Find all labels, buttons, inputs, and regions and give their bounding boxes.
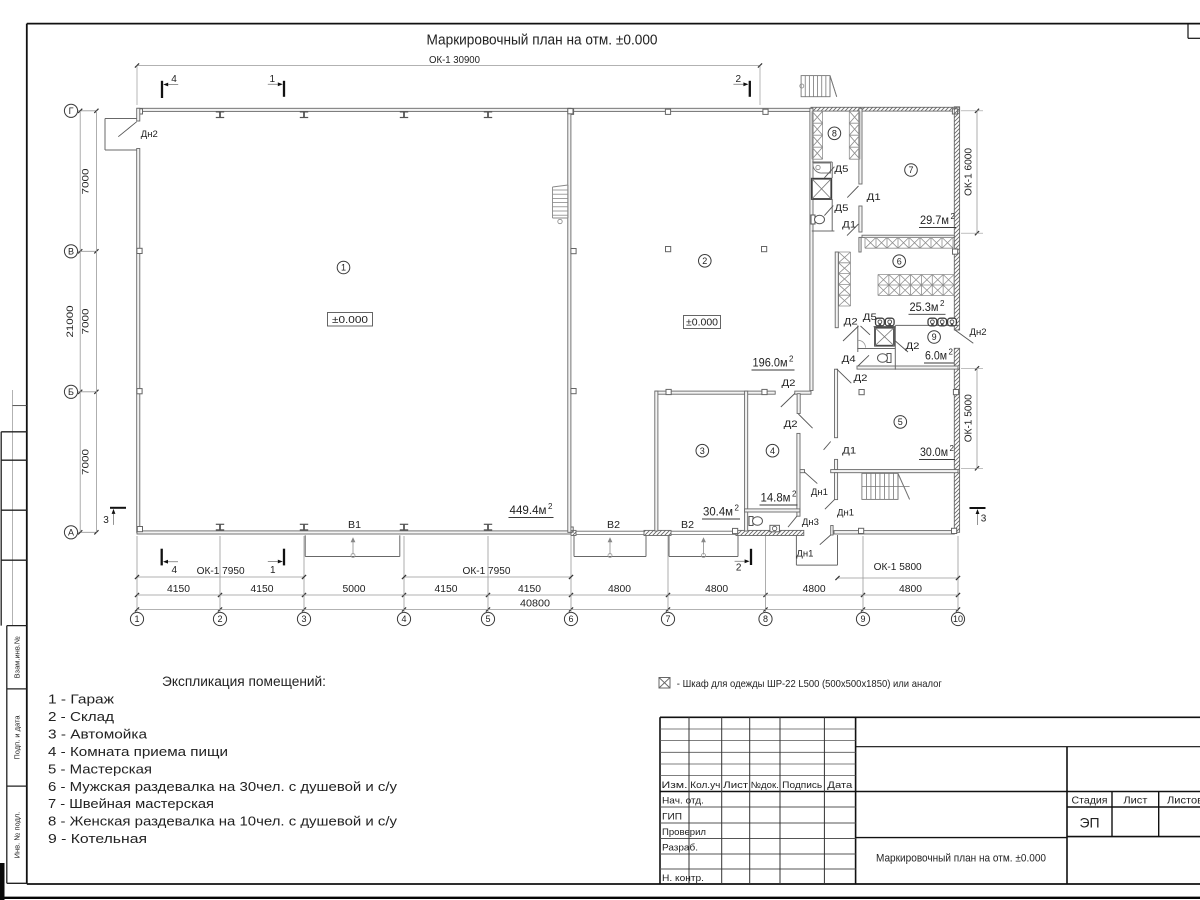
svg-text:2: 2 — [789, 355, 794, 364]
svg-text:В2: В2 — [607, 520, 620, 531]
svg-text:ЭП: ЭП — [1079, 815, 1099, 831]
svg-text:4: 4 — [172, 565, 178, 576]
svg-text:2: 2 — [951, 212, 956, 221]
svg-text:7: 7 — [908, 165, 913, 175]
svg-text:3: 3 — [981, 514, 987, 525]
svg-text:1: 1 — [270, 74, 276, 85]
svg-text:4150: 4150 — [251, 584, 275, 595]
svg-text:2: 2 — [792, 490, 797, 499]
svg-text:3: 3 — [301, 614, 306, 624]
svg-text:Г: Г — [69, 106, 74, 116]
svg-text:Экспликация помещений:: Экспликация помещений: — [162, 674, 326, 689]
svg-text:2 - Склад: 2 - Склад — [48, 709, 114, 724]
svg-text:Д5: Д5 — [834, 203, 848, 214]
svg-text:Инв. № подл.: Инв. № подл. — [13, 812, 22, 859]
svg-text:Кол.уч: Кол.уч — [690, 780, 720, 790]
svg-text:№док.: №док. — [751, 780, 779, 790]
svg-text:4: 4 — [770, 446, 775, 456]
svg-text:Нач. отд.: Нач. отд. — [662, 795, 704, 806]
svg-text:25.3м: 25.3м — [910, 300, 939, 314]
svg-text:В1: В1 — [348, 520, 361, 531]
svg-text:4800: 4800 — [803, 584, 827, 595]
svg-text:21000: 21000 — [65, 306, 76, 338]
svg-text:Д4: Д4 — [842, 354, 856, 365]
svg-text:449.4м: 449.4м — [510, 503, 547, 517]
svg-text:10: 10 — [953, 614, 963, 624]
svg-text:40800: 40800 — [520, 599, 551, 610]
svg-text:4: 4 — [171, 74, 177, 85]
svg-text:2: 2 — [736, 563, 742, 574]
svg-text:4800: 4800 — [608, 584, 632, 595]
svg-text:Д5: Д5 — [863, 312, 877, 323]
svg-text:±0.000: ±0.000 — [332, 314, 368, 326]
svg-text:4150: 4150 — [167, 584, 191, 595]
svg-text:6 - Мужская раздевалка на 30че: 6 - Мужская раздевалка на 30чел. с душев… — [48, 779, 397, 794]
svg-text:2: 2 — [702, 256, 707, 266]
svg-text:9 - Котельная: 9 - Котельная — [48, 831, 147, 846]
svg-text:2: 2 — [940, 299, 945, 308]
svg-text:Подп. и дата: Подп. и дата — [13, 715, 22, 760]
svg-text:30.0м: 30.0м — [920, 445, 948, 459]
svg-text:Взам.инв.№: Взам.инв.№ — [13, 636, 22, 678]
svg-text:Лист: Лист — [723, 780, 748, 790]
svg-text:1: 1 — [341, 263, 346, 273]
svg-text:ОК-1 6000: ОК-1 6000 — [964, 147, 975, 196]
svg-text:Дн3: Дн3 — [802, 517, 819, 528]
svg-text:ОК-1 5000: ОК-1 5000 — [964, 394, 975, 443]
svg-text:- Шкаф для одежды ШР-22 L500 (: - Шкаф для одежды ШР-22 L500 (500x500x18… — [677, 678, 942, 690]
svg-text:3: 3 — [700, 446, 705, 456]
svg-text:Д2: Д2 — [844, 316, 858, 327]
svg-text:3 - Автомойка: 3 - Автомойка — [48, 726, 148, 741]
svg-text:4800: 4800 — [899, 584, 923, 595]
svg-text:Дн1: Дн1 — [811, 487, 828, 498]
svg-text:ОК-1 7950: ОК-1 7950 — [197, 566, 246, 577]
svg-text:Стадия: Стадия — [1072, 796, 1108, 807]
svg-text:Д1: Д1 — [867, 192, 881, 203]
svg-text:Д2: Д2 — [782, 378, 796, 389]
svg-text:Дн1: Дн1 — [796, 549, 813, 560]
svg-text:8: 8 — [763, 614, 768, 624]
svg-text:3: 3 — [103, 515, 109, 526]
svg-text:Дн2: Дн2 — [970, 327, 987, 338]
svg-text:14.8м: 14.8м — [761, 491, 791, 505]
svg-text:ОК-1 7950: ОК-1 7950 — [463, 566, 512, 577]
svg-text:Дн2: Дн2 — [141, 129, 158, 140]
svg-text:Листов: Листов — [1167, 796, 1200, 807]
svg-text:А: А — [68, 527, 74, 537]
svg-text:Н. контр.: Н. контр. — [662, 873, 704, 884]
svg-text:Маркировочный план на отм. ±0.: Маркировочный план на отм. ±0.000 — [427, 33, 658, 49]
svg-text:Д5: Д5 — [834, 164, 848, 175]
svg-text:5 - Мастерская: 5 - Мастерская — [48, 761, 152, 776]
svg-text:4: 4 — [401, 614, 406, 624]
svg-text:7000: 7000 — [81, 449, 92, 475]
svg-text:5: 5 — [898, 417, 903, 427]
svg-text:Изм.: Изм. — [662, 780, 688, 790]
svg-text:Дн1: Дн1 — [837, 508, 854, 519]
svg-text:Лист: Лист — [1123, 796, 1147, 807]
svg-text:4 - Комната приема пищи: 4 - Комната приема пищи — [48, 744, 228, 759]
svg-text:Д2: Д2 — [906, 341, 920, 352]
svg-text:ОК-1 30900: ОК-1 30900 — [429, 55, 481, 66]
svg-text:2: 2 — [735, 504, 740, 513]
svg-text:7 - Швейная мастерская: 7 - Швейная мастерская — [48, 796, 214, 811]
svg-text:5: 5 — [485, 614, 490, 624]
svg-text:4800: 4800 — [705, 584, 729, 595]
svg-text:Д1: Д1 — [842, 220, 856, 231]
svg-text:7: 7 — [665, 614, 670, 624]
svg-text:±0.000: ±0.000 — [686, 317, 718, 329]
svg-text:30.4м: 30.4м — [703, 505, 733, 519]
svg-text:8: 8 — [832, 128, 837, 138]
svg-text:ГИП: ГИП — [662, 811, 682, 822]
svg-text:2: 2 — [217, 614, 222, 624]
svg-text:2: 2 — [949, 348, 954, 357]
svg-text:2: 2 — [548, 502, 553, 511]
svg-text:6: 6 — [568, 614, 573, 624]
svg-text:Проверил: Проверил — [662, 827, 706, 838]
svg-text:Д2: Д2 — [854, 373, 868, 384]
svg-text:Д1: Д1 — [842, 445, 856, 456]
svg-text:4150: 4150 — [435, 584, 459, 595]
svg-text:В: В — [68, 246, 74, 256]
svg-text:2: 2 — [736, 74, 742, 85]
svg-text:6.0м: 6.0м — [925, 349, 947, 363]
svg-text:Д2: Д2 — [784, 419, 798, 430]
svg-text:2: 2 — [950, 444, 955, 453]
svg-text:ОК-1 5800: ОК-1 5800 — [874, 562, 923, 573]
svg-text:Подпись: Подпись — [782, 780, 822, 790]
svg-text:7000: 7000 — [81, 309, 92, 335]
svg-text:1: 1 — [134, 614, 139, 624]
svg-text:9: 9 — [860, 614, 865, 624]
svg-text:6: 6 — [897, 256, 902, 266]
svg-text:7000: 7000 — [81, 169, 92, 195]
svg-text:Разраб.: Разраб. — [662, 842, 698, 853]
svg-text:5000: 5000 — [343, 584, 367, 595]
svg-text:9: 9 — [932, 332, 937, 342]
svg-text:Б: Б — [68, 387, 74, 397]
svg-text:4150: 4150 — [518, 584, 542, 595]
svg-text:196.0м: 196.0м — [753, 356, 788, 370]
svg-text:Дата: Дата — [827, 780, 852, 790]
svg-text:В2: В2 — [681, 520, 694, 531]
svg-text:29.7м: 29.7м — [920, 213, 949, 227]
svg-text:1 - Гараж: 1 - Гараж — [48, 692, 114, 707]
svg-text:1: 1 — [270, 565, 276, 576]
svg-text:8 - Женская раздевалка на 10че: 8 - Женская раздевалка на 10чел. с душев… — [48, 814, 397, 829]
svg-text:Маркировочный план на отм. ±0.: Маркировочный план на отм. ±0.000 — [876, 853, 1046, 865]
